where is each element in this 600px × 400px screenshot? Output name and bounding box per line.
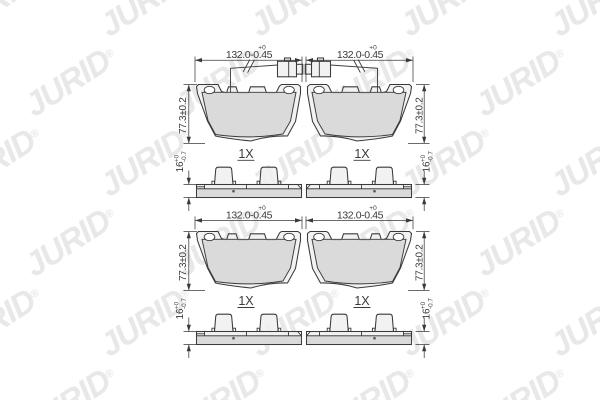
- thickness-dim-top-left: [184, 171, 198, 212]
- technical-drawing: 132.0-0.45 +0 77.3±0.2 16 +0 -0.7 1X 132…: [0, 0, 600, 400]
- thickness-dim-bottom-right: [416, 318, 430, 359]
- height-dim-label: 77.3±0.2: [178, 97, 189, 134]
- thickness-tol-minus: -0.7: [181, 298, 188, 309]
- thickness-dim-bottom-left: [184, 318, 198, 359]
- width-tol-label: +0: [369, 205, 377, 212]
- pad-side-bottom-right: [307, 314, 412, 344]
- thickness-tol-plus: +0: [420, 301, 427, 309]
- pad-side-top-left: [197, 167, 302, 197]
- height-dim-label: 77.3±0.2: [415, 244, 426, 281]
- quantity-label: 1X: [238, 147, 254, 161]
- thickness-tol-minus: -0.7: [181, 151, 188, 162]
- width-tol-label: +0: [258, 45, 266, 52]
- width-tol-label: +0: [369, 45, 377, 52]
- thickness-tol-plus: +0: [174, 301, 181, 309]
- width-tol-label: +0: [258, 205, 266, 212]
- thickness-tol-minus: -0.7: [427, 298, 434, 309]
- quadrant-bottom-right-mirrored: [307, 232, 412, 345]
- thickness-dim-label: 16 +0 -0.7: [166, 150, 188, 172]
- pad-side-bottom-left: [197, 314, 302, 344]
- quadrant-top-left: [184, 57, 303, 212]
- pad-front-top-right: [308, 85, 412, 142]
- pad-side-top-right: [307, 167, 412, 197]
- quantity-label: 1X: [354, 294, 370, 308]
- thickness-dim-top-right: [416, 171, 430, 212]
- brake-pad-drawing-sheet: JURID®JURID®JURID®JURID®JURID®JURID®JURI…: [0, 0, 600, 400]
- thickness-dim-label: 16 +0 -0.7: [166, 297, 188, 319]
- quantity-label: 1X: [354, 147, 370, 161]
- thickness-tol-minus: -0.7: [427, 151, 434, 162]
- height-dim-label: 77.3±0.2: [178, 244, 189, 281]
- height-dim-label: 77.3±0.2: [415, 97, 426, 134]
- pad-front-bottom-right: [308, 232, 412, 289]
- thickness-dim-label: 16 +0 -0.7: [412, 150, 434, 172]
- pad-front-bottom-left: [197, 232, 301, 289]
- thickness-dim-label: 16 +0 -0.7: [412, 297, 434, 319]
- thickness-tol-plus: +0: [420, 154, 427, 162]
- quadrant-top-right-mirrored: [305, 58, 411, 198]
- pad-front-top-left: [197, 85, 301, 142]
- quantity-label: 1X: [238, 294, 254, 308]
- thickness-tol-plus: +0: [174, 154, 181, 162]
